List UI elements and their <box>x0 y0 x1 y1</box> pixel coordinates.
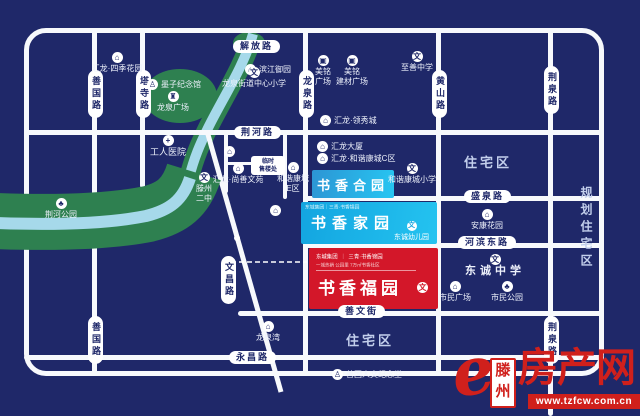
tower-icon: ♜ <box>168 91 179 102</box>
poi-label: 市民公园 <box>491 293 523 303</box>
monument-icon: ♙ <box>147 79 158 90</box>
poi-label: 墨子纪念馆 <box>161 80 201 90</box>
poi-label: 汇龙·和谐康城C区 <box>331 154 395 164</box>
poi-dongcheng-middle-school: 文 东诚中学 <box>455 254 535 276</box>
project-logo: 三青·书香锦园 <box>348 252 382 260</box>
poi-label: 和谐康城小学 <box>388 175 436 185</box>
watermark-url: www.tzfcw.com.cn <box>528 394 640 409</box>
mall-icon: ▣ <box>347 55 358 66</box>
road-label-wenchang: 文昌路 <box>221 256 236 304</box>
school-icon: 文 <box>490 254 501 265</box>
school-icon: 文 <box>407 163 418 174</box>
developer-logo-row: 东城集团 ｜ 三青·书香锦园 <box>316 252 383 260</box>
poi-label: 东诚中学 <box>465 266 525 276</box>
poi-label: 龙泉湾 <box>256 333 280 343</box>
building-icon: ⌂ <box>112 52 123 63</box>
poi-huilong-lingxiucheng: ⌂ 汇龙·领秀城 <box>320 115 377 126</box>
poi-label: 龙泉街道中心小学 <box>222 79 286 89</box>
school-icon: 文 <box>249 67 260 78</box>
building-icon: ⌂ <box>320 115 331 126</box>
road-label-shanwenjie: 善文街 <box>338 305 385 318</box>
poi-shanguo-memorial: ♙ 善国人文纪念堂 <box>332 369 402 380</box>
planned-residential-label: 规划住宅区 <box>578 186 595 271</box>
hospital-icon: + <box>163 135 174 146</box>
poi-label: 工人医院 <box>150 147 186 157</box>
residential-area-label-s: 住宅区 <box>346 330 394 349</box>
tree-icon: ♣ <box>56 198 67 209</box>
building-icon: ⌂ <box>288 162 299 173</box>
building-icon: ⌂ <box>270 205 281 216</box>
poi-citizens-park: ♣ 市民公园 <box>467 281 547 303</box>
poi-workers-hospital: + 工人医院 <box>128 135 208 157</box>
poi-label: 安康花园 <box>471 221 503 231</box>
poi-huilong-tower: ⌂ 汇龙大厦 <box>317 141 363 152</box>
location-map: 解放路 荆河路 盛泉路 河滨东路 善文街 永昌路 善国路 塔寺路 龙泉路 黄山路… <box>0 0 640 416</box>
poi-hexie-kangcheng-primary: 文 和谐康城小学 <box>372 163 452 185</box>
marker-dot <box>234 235 240 241</box>
logo-divider: ｜ <box>340 252 345 260</box>
tree-icon: ♣ <box>502 281 513 292</box>
road-label-shanguo-s: 善国路 <box>88 316 103 364</box>
poi-label: 滕州 二中 <box>196 184 212 204</box>
poi-label: 汇龙·领秀城 <box>334 116 377 126</box>
road-label-jingquan-n: 荆泉路 <box>544 66 559 114</box>
estate-shuxiang-jiayuan: 东城集团｜三青·书香锦园 书香家园 文 东诚幼儿园 <box>301 202 437 244</box>
poi-ankang-garden: ⌂ 安康花园 <box>447 209 527 231</box>
poi-label: 汇龙·四季花园 <box>92 64 143 74</box>
road-label-yongchang: 永昌路 <box>229 351 276 364</box>
poi-longquan-central-primary: 文 龙泉街道中心小学 <box>214 67 294 89</box>
poi-jinghe-park: ♣ 荆河公园 <box>21 198 101 220</box>
poi-label: 汇龙大厦 <box>331 142 363 152</box>
poi-label: 美铭 建材广场 <box>336 67 368 87</box>
poi-mozi-memorial: ♙ 墨子纪念馆 <box>147 79 201 90</box>
monument-icon: ♙ <box>332 369 343 380</box>
divider-line <box>316 270 416 271</box>
poi-label: 和谐康城 E区 <box>277 174 309 194</box>
building-icon: ⌂ <box>482 209 493 220</box>
school-icon: 文 <box>407 221 417 231</box>
watermark-city-box: 滕州 <box>490 358 516 408</box>
poi-longquan-square: ♜ 龙泉广场 <box>133 91 213 113</box>
road-label-jinghe: 荆河路 <box>234 126 281 139</box>
temporary-sales-office: 临时 售楼处 <box>251 156 285 175</box>
poi-label: 东诚幼儿园 <box>394 232 429 242</box>
road-label-huangshan: 黄山路 <box>432 70 447 118</box>
road-label-shengquan: 盛泉路 <box>464 190 511 203</box>
building-icon: ⌂ <box>317 141 328 152</box>
estate-header: 东城集团｜三青·书香锦园 <box>305 203 359 210</box>
estate-name: 书香家园 <box>311 212 395 233</box>
poi-longquan-bay: ⌂ 龙泉湾 <box>228 321 308 343</box>
road-label-hebindong: 河滨东路 <box>458 236 516 249</box>
poi-dongcheng-kindergarten: 文 东诚幼儿园 <box>394 221 429 242</box>
poi-huilong-siji-garden: ⌂ 汇龙·四季花园 <box>77 52 157 74</box>
building-icon: ⌂ <box>450 281 461 292</box>
road-label-shanguo-n: 善国路 <box>88 70 103 118</box>
poi-label: 至善中学 <box>401 63 433 73</box>
building-icon: ⌂ <box>224 146 235 157</box>
watermark-site-name: 房产网 <box>518 348 635 388</box>
developer-logo: 东城集团 <box>316 252 338 260</box>
site-watermark: e 滕州 房产网 www.tzfcw.com.cn <box>448 344 640 416</box>
poi-label: 善国人文纪念堂 <box>346 370 402 380</box>
poi-zhishan-middle-school: 文 至善中学 <box>377 51 457 73</box>
poi-tengzhou-no2-middle: 文 滕州 二中 <box>164 172 244 204</box>
school-icon: 文 <box>199 172 210 183</box>
school-icon: 文 <box>412 51 423 62</box>
residential-area-label-ne: 住宅区 <box>464 152 512 171</box>
road-label-jiefang: 解放路 <box>233 40 280 53</box>
poi-label: 荆河公园 <box>45 210 77 220</box>
building-icon: ⌂ <box>263 321 274 332</box>
estate-name: 书香福园 <box>318 274 402 299</box>
estate-tagline: 一城热销 公园里 7万㎡书香社区 <box>316 261 380 268</box>
poi-label: 龙泉广场 <box>157 103 189 113</box>
